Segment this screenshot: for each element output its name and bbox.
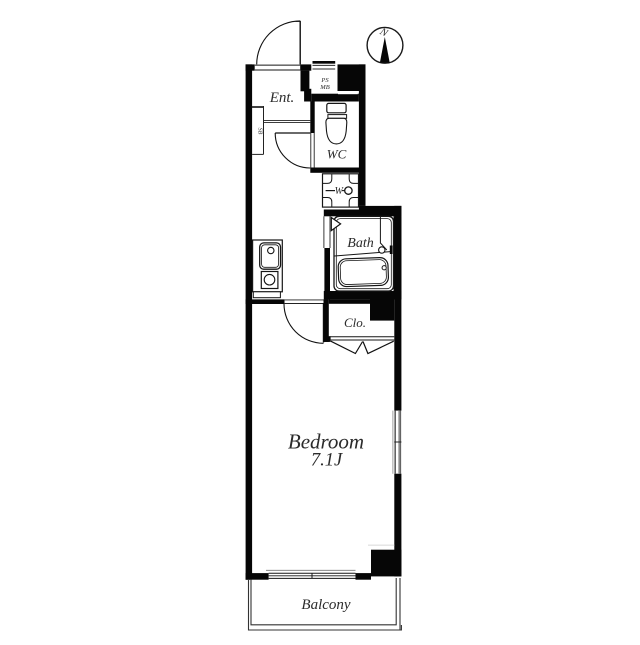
svg-text:Clo.: Clo. xyxy=(344,315,366,330)
svg-text:MB: MB xyxy=(319,84,329,91)
svg-text:7.1J: 7.1J xyxy=(311,451,343,471)
svg-text:Balcony: Balcony xyxy=(301,597,350,613)
svg-text:Bath: Bath xyxy=(347,236,373,251)
svg-text:PS: PS xyxy=(320,77,329,84)
svg-text:WC: WC xyxy=(327,147,347,162)
svg-text:SB: SB xyxy=(257,128,263,135)
svg-text:Ent.: Ent. xyxy=(269,90,295,106)
